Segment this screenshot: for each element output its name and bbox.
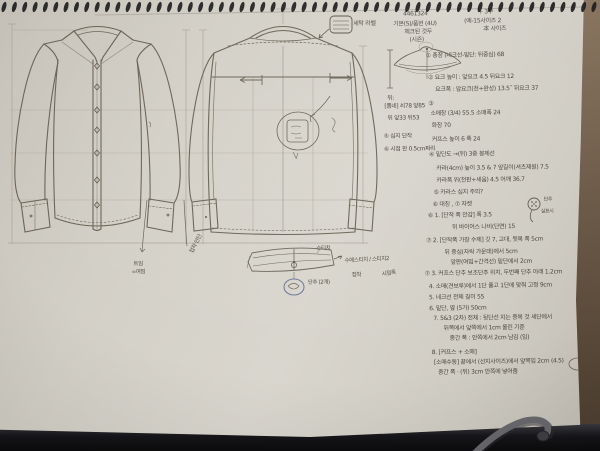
spec-note: ⑥ 대칭 , ⑦ 자켓 bbox=[433, 202, 472, 209]
spec-note: ② 요크 높이 : 앞요크 4.5 뒤요크 12 bbox=[428, 74, 514, 81]
hem-slit-label-2: =여밈 bbox=[132, 267, 146, 275]
spec-note: 뒤 바이어스 나비(단면) 15 bbox=[452, 224, 515, 231]
spec-note: 소매장 (3/4) 55.5 소매폭 24 bbox=[430, 110, 500, 117]
spec-note: 앞판(여밈+간격선) 밑단에서 2cm bbox=[450, 259, 532, 266]
spec-note: ④ 밑단도 →(뒤) 3중 봉제선 bbox=[429, 151, 495, 158]
spec-note: ⑦ 3. 커프스 단추 보조단추 위치, 두번째 단추 아래 1.2cm bbox=[425, 269, 563, 277]
spec-note: 카라폭 위(천판+세움) 4.5 어깨 36.7 bbox=[436, 177, 524, 184]
spec-note: 화장 70 bbox=[432, 123, 451, 129]
sketchbook-page: 4461324 기본(S)/품번 (4U) 체크된 것두 (시즌) + 3부 (… bbox=[0, 0, 600, 451]
spec-note: 중간 폭 · (뒤) 3cm 안쪽에 넣어줌 bbox=[438, 369, 518, 376]
spec-note: 7. 5&3 (2차) 전체 : 뒷단선 지는 중복 것 세단에서 bbox=[433, 314, 552, 322]
spec-note: 중간 폭 : 안쪽에서 2cm 남김 (임) bbox=[450, 335, 530, 342]
spec-note: ⑥ 1. [단작 폭 안감] 폭 3.5 bbox=[428, 212, 492, 219]
care-label-text: 세탁 라벨 bbox=[353, 18, 376, 27]
stitch-top-label: 스티치 bbox=[316, 244, 330, 252]
style-line-4: (시즌) bbox=[409, 34, 424, 43]
spec-note: 요크폭 : 앞요크(천+완성) 13.5˝ 뒤요크 37 bbox=[435, 86, 538, 93]
margin-note: [폼네] 쇠78 앞85 bbox=[384, 100, 425, 110]
thread-label: 실표시 bbox=[541, 207, 554, 214]
button-label: 단추 bbox=[544, 195, 553, 202]
spec-note: 8. [커프스 + 소매] bbox=[432, 350, 477, 357]
spec-note: [소매수동] 끝에서 (선지사이즈)에서 앞쪽임 2cm (4.5) bbox=[434, 358, 564, 366]
style-number: 4461324 bbox=[403, 10, 428, 17]
adhesive-label: 접착 bbox=[352, 270, 361, 278]
notebook-photo: 4461324 기본(S)/품번 (4U) 체크된 것두 (시즌) + 3부 (… bbox=[0, 0, 600, 451]
spec-note: 뒤쪽에서 앞쪽에서 1cm 올린 기준 bbox=[443, 325, 524, 332]
spec-note: 카라(4cm) 높이 3.5 & 7 앞길이(셔츠제원) 7.5 bbox=[436, 165, 549, 173]
size-line-3: 本 사이즈 bbox=[483, 23, 506, 32]
spec-note: 커프스 높이 6 폭 24 bbox=[432, 136, 480, 143]
spec-note: 뒤 중심(자락 가운데)에서 5cm bbox=[444, 249, 517, 256]
spec-note: ⑤ 카라스 심지 주의? bbox=[434, 189, 483, 196]
hem-slit-label: 트임 bbox=[133, 259, 142, 267]
margin-note: ⑥ 시접 판 0.5cm짜리 bbox=[384, 143, 435, 153]
seam-width-label: 시접폭 bbox=[381, 268, 396, 278]
spec-note: 4. 소매(견보루)에서 1단 풀고 1단에 맞춰 고정 9cm bbox=[429, 282, 552, 290]
margin-note: ⑤ 심지 단작 bbox=[384, 130, 412, 139]
cuff-facing-label: 접착 안단 bbox=[187, 233, 203, 254]
margin-note: 뒤 앞33 뒤53 bbox=[387, 112, 419, 121]
size-line-1: + 3부 bbox=[478, 6, 493, 15]
spec-note: ③ bbox=[428, 101, 433, 107]
spec-note: 5. 네크선 전체 길이 55 bbox=[429, 294, 484, 301]
handwriting-layer: 4461324 기본(S)/품번 (4U) 체크된 것두 (시즌) + 3부 (… bbox=[0, 0, 600, 451]
button-pair-label: 단추 (2개) bbox=[308, 278, 330, 286]
spec-note: ① 총장 (네크선-밑단: 뒤중심) 68 bbox=[426, 52, 504, 59]
stitch-right-label: 수에스티치 / 스티치2 bbox=[344, 254, 389, 264]
spec-note: ⑦ 2. [단작폭 가장 수제] 깃 7, 고대, 뒷목 폭 5cm bbox=[426, 237, 543, 245]
spec-note: 6. 밑단, 옆 (5가) 50cm bbox=[429, 305, 486, 312]
